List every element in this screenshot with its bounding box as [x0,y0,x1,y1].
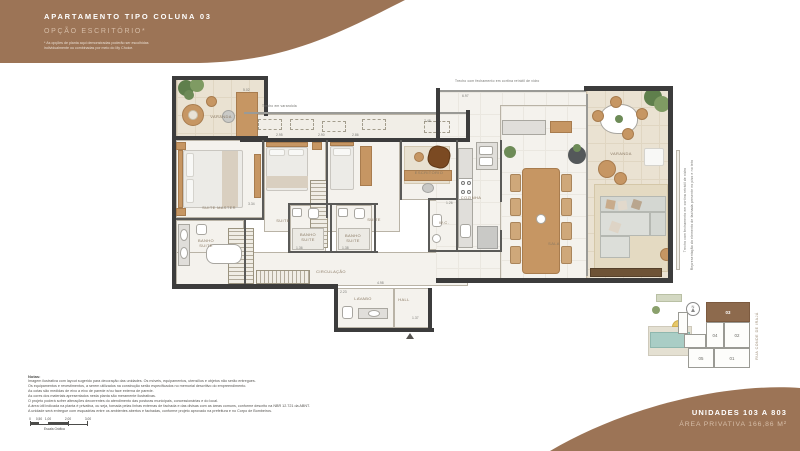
glass-curtain-line [440,90,586,92]
wall [400,140,402,200]
dimension: 5.02 [243,88,250,92]
fridge [477,226,498,249]
centerpiece [536,214,546,224]
wall [466,110,470,140]
label-varanda-right: VARANDA [610,152,632,157]
label-hall: HALL [398,298,409,303]
outdoor-chair [636,108,648,120]
plant [184,90,194,100]
burner [461,190,465,194]
sofa-arm [650,212,666,236]
key-plan-stub [684,334,706,348]
sideboard [590,268,662,277]
scale-line [30,424,88,425]
scale-bar: 0 0,50 1,00 2,00 3,00 Escala Gráfica [30,417,100,435]
wall [176,218,264,220]
wall [500,230,502,252]
wall [244,220,246,284]
coffee-table [614,172,627,185]
desk [236,92,258,140]
plant [504,146,516,158]
pillow [269,149,285,156]
wall [262,140,264,218]
burner [467,181,471,185]
key-plan-unit-03: 03 [706,302,750,322]
dining-chair [561,222,572,240]
pillow [186,153,194,177]
outdoor-chair [622,128,634,140]
tree [652,306,660,314]
annotation-facade-right: Representação do elemento de fachada pre… [690,140,694,290]
label-banho-master: BANHO SUITE [198,239,214,248]
dimension: 1.38 [342,246,349,250]
dimension: 3.34 [248,202,255,206]
plant [573,144,581,152]
dining-chair [510,246,521,264]
label-escritorio: ESCRITÓRIO [415,171,443,176]
burner [461,181,465,185]
label-lavabo: LAVABO [354,297,372,302]
nightstand [176,142,186,150]
dimension: 2.90 [318,133,325,137]
wall [436,278,673,283]
key-plan-unit-02: 02 [724,322,750,348]
scale-tick [30,421,31,426]
scale-label: 0,50 [36,417,42,421]
closet-hatch-2 [256,270,310,284]
label-sala: SALA [548,242,560,247]
dimension: 4.98 [377,281,384,285]
label-suite-2: SUITE [276,219,290,224]
island-counter [502,120,546,135]
wall [288,203,378,205]
window-line [244,112,468,114]
scale-segment [48,422,68,424]
label-suite-3: SUITE [367,218,381,223]
lounge-chair [644,148,664,166]
wall [172,284,338,289]
plant [615,115,623,123]
label-banho-b: BANHO SUITE [345,234,361,243]
toilet [196,224,207,235]
wall [288,203,290,253]
wall [500,140,502,202]
sink [180,247,188,259]
wall [374,203,376,253]
facade-element [676,150,680,270]
scale-label: 3,00 [85,417,91,421]
sink [338,208,348,217]
entrance-arrow-icon [406,333,414,339]
key-plan-stub [678,312,688,334]
annotation-glass-right: Trecho com fechamento em cortina retráti… [683,135,687,285]
annotation-varandola: Trecho em varandola [262,104,297,108]
wall [436,88,440,142]
sofa-chaise [600,236,630,258]
dimension: 1.26 [446,201,453,205]
street-label: RUA CONDE DE IRAJÁ [755,301,759,371]
pillow [288,149,304,156]
annotation-glass-top: Trecho com fechamento em cortina retráti… [455,79,539,83]
dining-chair [561,174,572,192]
dining-chair [561,246,572,264]
sink [460,224,471,238]
side-table [206,96,217,107]
label-circulacao: CIRCULAÇÃO [316,270,346,275]
dashed-equipment-1 [258,119,282,130]
label-varanda-left: VARANDA [210,115,232,120]
outdoor-chair [610,96,622,108]
sink [368,310,380,317]
dashed-equipment-3 [322,121,346,132]
scale-tick [68,421,69,426]
dimension: 2.86 [352,133,359,137]
wall [428,198,430,252]
wall [428,288,432,332]
plant [190,78,204,92]
office-chair [422,183,434,193]
wardrobe [360,146,372,186]
dining-chair [561,198,572,216]
sink [180,229,188,241]
toilet [308,208,319,219]
tv-console [254,154,261,198]
sink [292,208,302,217]
label-cozinha: COZINHA [461,196,481,201]
key-plan-unit-01: 01 [714,348,750,368]
dining-chair [510,198,521,216]
dashed-equipment-2 [290,119,314,130]
wall [172,76,176,288]
wall [288,251,378,253]
bed-throw [266,176,308,188]
outdoor-chair [592,110,604,122]
chair-cushion [188,110,198,120]
wall [172,76,268,80]
wall [428,198,458,200]
wall [330,205,332,253]
dining-chair [510,174,521,192]
dimension: 2.23 [340,290,347,294]
dashed-equipment-4 [362,119,386,130]
serving-board [550,121,572,133]
cushion [605,199,615,209]
key-plan-unit-04: 04 [706,322,724,348]
wall [334,328,434,332]
scale-tick [87,421,88,426]
nightstand [312,142,322,150]
dining-chair [510,222,521,240]
wall [326,140,328,218]
coffee-table [598,160,616,178]
label-suite-master: SUITE MASTER [202,206,236,211]
wall [264,76,268,116]
dimension: 2.95 [276,133,283,137]
north-label: N [687,304,699,309]
sofa-seat [600,212,650,236]
notes-block: Notas: Imagem ilustrativa com layout sug… [28,374,468,414]
wall [456,140,458,252]
dimension: 6.97 [462,94,469,98]
scale-caption: Escala Gráfica [44,427,65,431]
wall [428,250,502,252]
greenery [656,294,682,302]
wall [668,86,673,282]
ottoman [414,152,424,162]
pillow [333,148,351,156]
glass-curtain-line [586,94,588,276]
key-plan-unit-05: 05 [688,348,714,368]
sink [432,234,441,243]
scale-label: 1,00 [45,417,51,421]
north-arrow-icon: N [686,302,700,316]
cushion [617,200,627,210]
kitchen-sink [479,146,493,155]
dimension: 1.37 [412,316,419,320]
dimension: 1.36 [296,246,303,250]
scale-segment [30,422,39,424]
toilet [342,306,353,319]
bed-throw [222,151,238,207]
wall [334,288,338,332]
label-wc: W.C. [439,221,449,226]
nightstand [176,208,186,216]
dimension: 7.48 [424,119,431,123]
note-line: A unidade será entregue com esquadrias e… [28,409,468,414]
burner [467,190,471,194]
wall [584,86,672,91]
kitchen-sink [479,157,493,166]
room-hall [394,288,430,328]
toilet [354,208,365,219]
label-banho-a: BANHO SUITE [300,233,316,242]
pillow [186,179,194,203]
